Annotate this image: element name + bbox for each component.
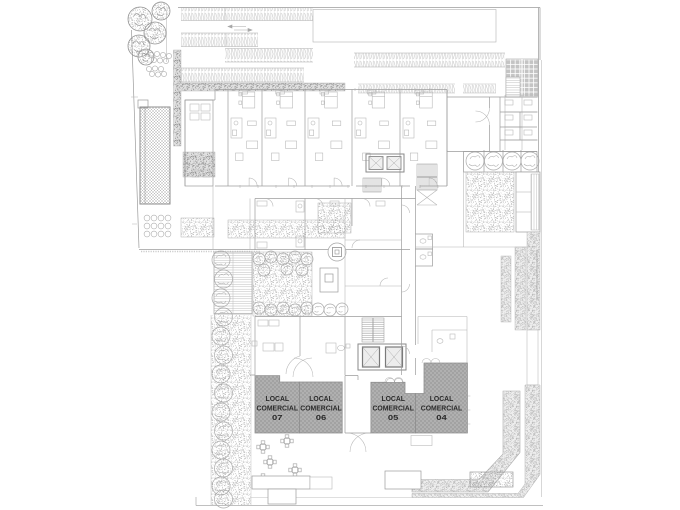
svg-text:04: 04 [436,415,447,422]
svg-text:LOCAL: LOCAL [381,396,405,403]
svg-text:06: 06 [316,415,327,422]
svg-text:COMERCIAL: COMERCIAL [257,405,299,412]
svg-text:05: 05 [388,415,399,422]
svg-text:LOCAL: LOCAL [309,396,333,403]
svg-text:LOCAL: LOCAL [430,396,454,403]
svg-text:COMERCIAL: COMERCIAL [300,405,342,412]
svg-text:LOCAL: LOCAL [266,396,290,403]
svg-text:COMERCIAL: COMERCIAL [421,405,463,412]
svg-text:07: 07 [272,415,283,422]
svg-text:COMERCIAL: COMERCIAL [372,405,414,412]
